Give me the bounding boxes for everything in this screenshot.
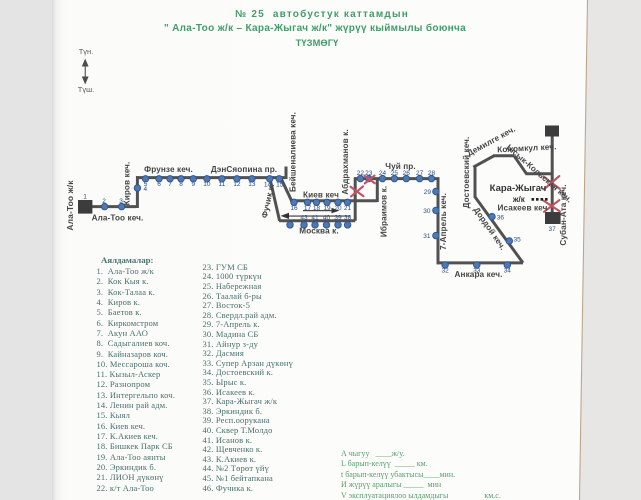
svg-text:28: 28 (428, 170, 436, 177)
svg-text:5: 5 (144, 181, 148, 188)
svg-text:22: 22 (357, 170, 365, 177)
svg-text:Анкара кеч.: Анкара кеч. (455, 270, 503, 279)
svg-text:37: 37 (549, 226, 557, 233)
svg-text:41: 41 (311, 215, 319, 222)
svg-text:34: 34 (504, 267, 512, 274)
svg-text:11: 11 (219, 181, 226, 188)
svg-text:43: 43 (300, 215, 308, 222)
svg-text:Абдрахманов к.: Абдрахманов к. (340, 129, 350, 195)
svg-text:Москва к.: Москва к. (299, 226, 338, 235)
svg-text:27: 27 (416, 170, 424, 177)
svg-text:39: 39 (334, 215, 342, 222)
svg-text:12: 12 (233, 181, 241, 188)
svg-text:29: 29 (424, 189, 432, 196)
svg-text:20: 20 (334, 205, 342, 212)
svg-text:Чуй пр.: Чуй пр. (385, 162, 416, 171)
svg-text:Исакеев кеч: Исакеев кеч (498, 204, 548, 213)
svg-text:1: 1 (83, 194, 87, 201)
svg-text:6: 6 (157, 181, 161, 188)
svg-text:10: 10 (203, 181, 211, 188)
svg-text:18: 18 (313, 205, 321, 212)
svg-text:35: 35 (514, 237, 522, 244)
svg-text:15: 15 (276, 182, 284, 189)
svg-text:32: 32 (441, 267, 449, 274)
svg-text:7-Апрель кеч.: 7-Апрель кеч. (439, 193, 448, 250)
svg-text:Киев кеч: Киев кеч (303, 191, 339, 200)
svg-text:40: 40 (323, 215, 331, 222)
svg-text:25: 25 (391, 170, 399, 177)
svg-text:ж/к: ж/к (512, 195, 526, 204)
svg-text:Ала-Тоо ж/к: Ала-Тоо ж/к (65, 180, 75, 231)
svg-text:36: 36 (497, 215, 505, 222)
svg-text:31: 31 (423, 233, 431, 240)
svg-text:2: 2 (102, 198, 106, 205)
svg-text:7: 7 (168, 181, 172, 188)
svg-text:19: 19 (323, 205, 331, 212)
svg-text:Киров кеч.: Киров кеч. (123, 162, 132, 206)
svg-text:Кара-Жыгач: Кара-Жыгач (490, 183, 547, 194)
svg-text:21: 21 (344, 205, 352, 212)
svg-text:16: 16 (290, 205, 298, 212)
svg-text:Фрунзе кеч.: Фрунзе кеч. (144, 165, 193, 174)
svg-text:9: 9 (191, 181, 195, 188)
svg-text:ДэнСяопина пр.: ДэнСяопина пр. (211, 165, 277, 174)
svg-text:Бейшеналиева кеч.: Бейшеналиева кеч. (289, 112, 298, 192)
svg-text:26: 26 (403, 170, 411, 177)
svg-text:Ала-Тоо кеч.: Ала-Тоо кеч. (92, 213, 144, 222)
svg-text:30: 30 (423, 208, 431, 215)
svg-text:13: 13 (248, 181, 256, 188)
svg-text:17: 17 (304, 205, 312, 212)
svg-text:Ибраимов к.: Ибраимов к. (379, 186, 389, 237)
svg-text:38: 38 (344, 215, 352, 222)
svg-text:8: 8 (179, 181, 183, 188)
svg-text:24: 24 (379, 170, 387, 177)
